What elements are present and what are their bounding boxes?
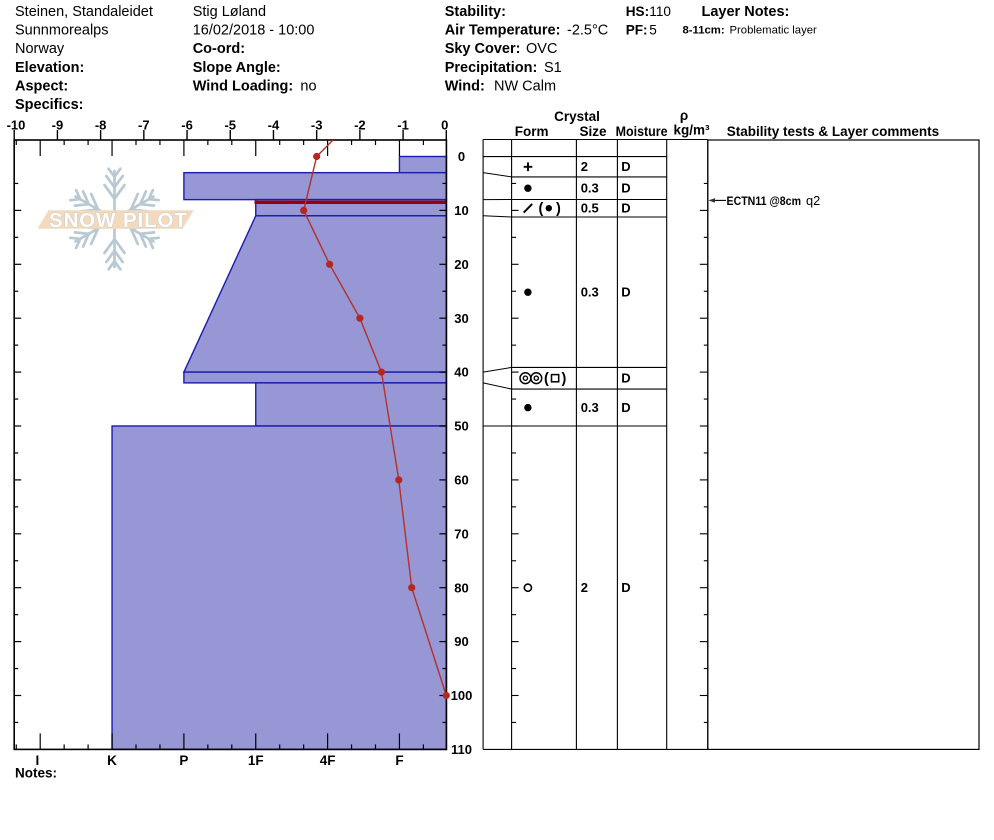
svg-text:Co-ord:: Co-ord: [193, 41, 245, 57]
svg-text:Air Temperature:: Air Temperature: [445, 23, 561, 39]
svg-text:Stig Løland: Stig Løland [193, 4, 266, 20]
svg-text:30: 30 [454, 311, 468, 326]
svg-text:0.3: 0.3 [581, 285, 599, 300]
svg-text:-7: -7 [138, 118, 150, 133]
svg-text:16/02/2018 - 10:00: 16/02/2018 - 10:00 [193, 23, 315, 39]
svg-text:0.5: 0.5 [581, 201, 599, 216]
svg-text:PF:: PF: [626, 23, 648, 38]
svg-text:Stability tests & Layer commen: Stability tests & Layer comments [727, 124, 939, 139]
svg-text:10: 10 [454, 203, 468, 218]
svg-text:Size: Size [579, 124, 607, 139]
svg-text:ECTN11 @8cm: ECTN11 @8cm [727, 194, 802, 208]
svg-text:D: D [621, 159, 630, 174]
svg-text:110: 110 [451, 742, 472, 757]
svg-text:Sky Cover:: Sky Cover: [445, 41, 521, 57]
svg-text:D: D [621, 181, 630, 196]
svg-text:-6: -6 [181, 118, 193, 133]
svg-text:D: D [621, 580, 630, 595]
svg-text:Aspect:: Aspect: [15, 78, 68, 94]
svg-text:D: D [621, 285, 630, 300]
svg-text:P: P [179, 753, 188, 768]
svg-text:90: 90 [454, 634, 468, 649]
svg-text:Moisture: Moisture [616, 124, 668, 139]
svg-text:Elevation:: Elevation: [15, 60, 84, 76]
svg-text:Form: Form [515, 124, 549, 139]
svg-text:70: 70 [454, 526, 468, 541]
svg-text:0: 0 [458, 149, 465, 164]
svg-text:D: D [621, 201, 630, 216]
svg-text:Stability:: Stability: [445, 4, 506, 20]
svg-text:-9: -9 [52, 118, 64, 133]
svg-text:-10: -10 [7, 118, 26, 133]
svg-text:5: 5 [649, 23, 657, 38]
svg-text:4F: 4F [320, 753, 336, 768]
svg-text:1F: 1F [248, 753, 264, 768]
svg-text:20: 20 [454, 257, 468, 272]
svg-text:S1: S1 [544, 60, 562, 76]
svg-text:-2: -2 [354, 118, 366, 133]
svg-text:Slope Angle:: Slope Angle: [193, 60, 281, 76]
svg-text:0.3: 0.3 [581, 400, 599, 415]
svg-text:NW Calm: NW Calm [494, 78, 556, 94]
svg-text:D: D [621, 400, 630, 415]
svg-text:Wind Loading:: Wind Loading: [193, 78, 294, 94]
svg-text:Notes:: Notes: [15, 766, 57, 781]
svg-text:): ) [562, 371, 567, 387]
svg-text:no: no [300, 78, 316, 94]
svg-text:-5: -5 [224, 118, 236, 133]
svg-text:(: ( [544, 371, 549, 387]
svg-text:(: ( [539, 201, 544, 217]
svg-text:50: 50 [454, 419, 468, 434]
svg-text:8-11cm:: 8-11cm: [683, 24, 725, 36]
svg-text:2: 2 [581, 159, 588, 174]
svg-text:Wind:: Wind: [445, 78, 485, 94]
svg-text:-1: -1 [397, 118, 409, 133]
svg-text:D: D [621, 371, 630, 386]
svg-text:Sunnmorealps: Sunnmorealps [15, 23, 109, 39]
svg-text:-2.5°C: -2.5°C [567, 23, 608, 39]
svg-text:80: 80 [454, 580, 468, 595]
svg-text:Precipitation:: Precipitation: [445, 60, 538, 76]
svg-text:kg/m³: kg/m³ [673, 123, 710, 138]
svg-text:40: 40 [454, 365, 468, 380]
svg-text:0: 0 [441, 118, 448, 133]
svg-text:Norway: Norway [15, 41, 65, 57]
svg-text:Crystal: Crystal [554, 109, 600, 124]
svg-text:OVC: OVC [526, 41, 557, 57]
svg-text:F: F [395, 753, 403, 768]
svg-text:100: 100 [451, 688, 473, 703]
svg-text:Layer Notes:: Layer Notes: [702, 4, 790, 20]
svg-text:HS:: HS: [626, 4, 649, 19]
svg-text:0.3: 0.3 [581, 181, 599, 196]
svg-text:60: 60 [454, 473, 468, 488]
svg-text:q2: q2 [806, 193, 820, 208]
svg-text:ρ: ρ [680, 108, 688, 123]
svg-text:Problematic layer: Problematic layer [730, 24, 818, 36]
svg-text:SNOW PILOT: SNOW PILOT [49, 209, 188, 232]
svg-text:-3: -3 [311, 118, 323, 133]
svg-text:): ) [556, 201, 561, 217]
svg-text:-8: -8 [95, 118, 107, 133]
svg-text:Specifics:: Specifics: [15, 97, 84, 113]
svg-text:Steinen, Standaleidet: Steinen, Standaleidet [15, 4, 153, 20]
svg-text:2: 2 [581, 580, 588, 595]
svg-text:110: 110 [649, 4, 671, 19]
svg-text:-4: -4 [268, 118, 280, 133]
svg-text:K: K [107, 753, 117, 768]
